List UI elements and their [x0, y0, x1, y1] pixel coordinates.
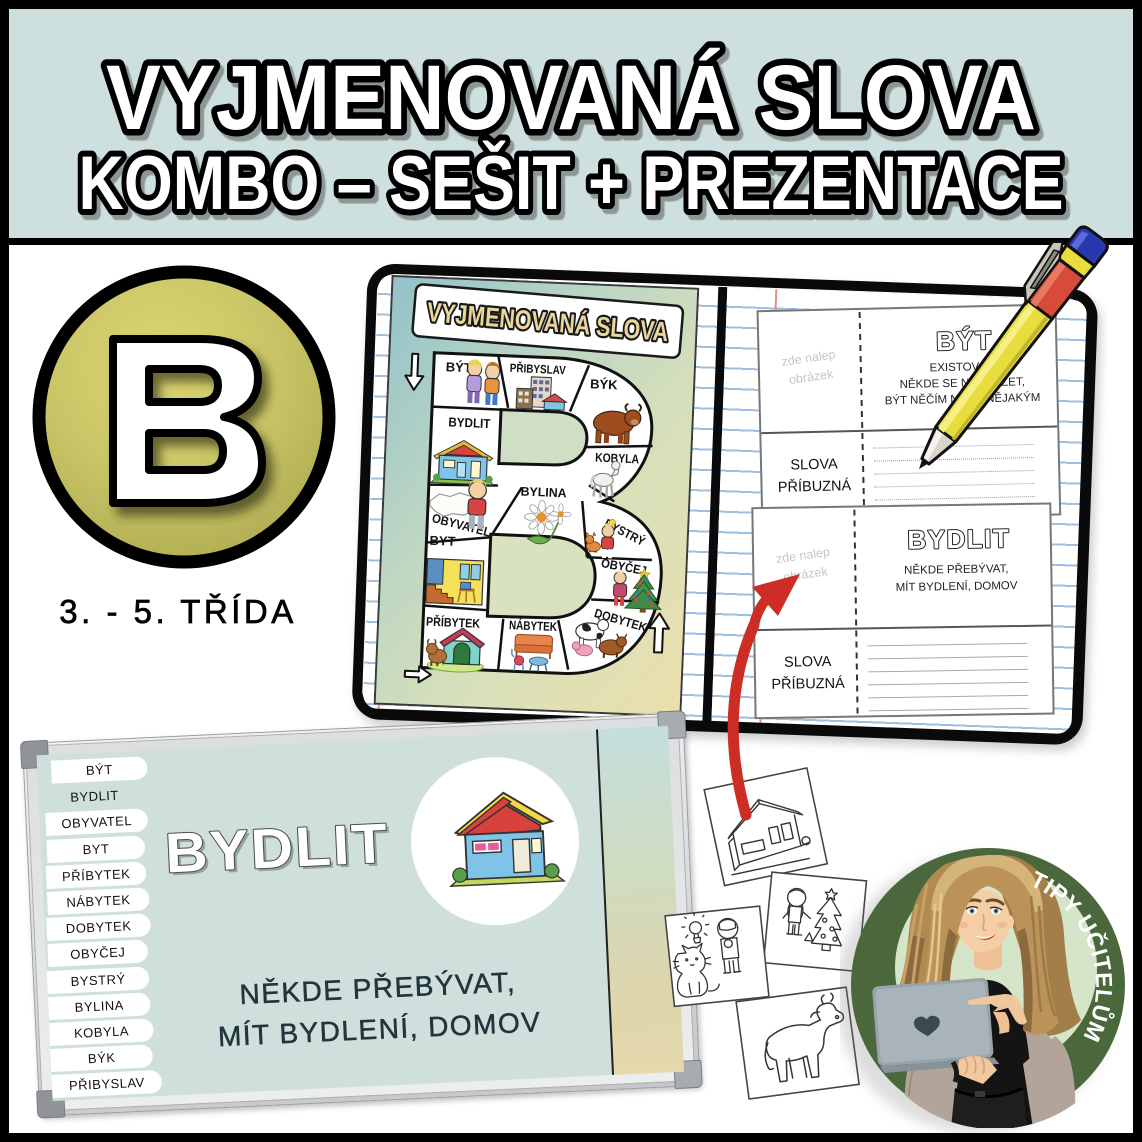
svg-text:NÁBYTEK: NÁBYTEK [509, 617, 558, 634]
svg-text:PŘÍBYTEK: PŘÍBYTEK [426, 614, 481, 631]
svg-text:BÝK: BÝK [590, 376, 619, 392]
svg-text:BYT: BYT [429, 533, 456, 549]
svg-text:BYLINA: BYLINA [520, 484, 567, 500]
svg-text:VYJMENOVANÁ SLOVA: VYJMENOVANÁ SLOVA [106, 47, 1036, 149]
svg-text:PŘIBYSLAV: PŘIBYSLAV [509, 360, 566, 377]
svg-text:BYDLIT: BYDLIT [448, 414, 491, 431]
svg-text:BYDLIT: BYDLIT [164, 811, 391, 884]
svg-text:BYDLIT: BYDLIT [907, 523, 1010, 555]
